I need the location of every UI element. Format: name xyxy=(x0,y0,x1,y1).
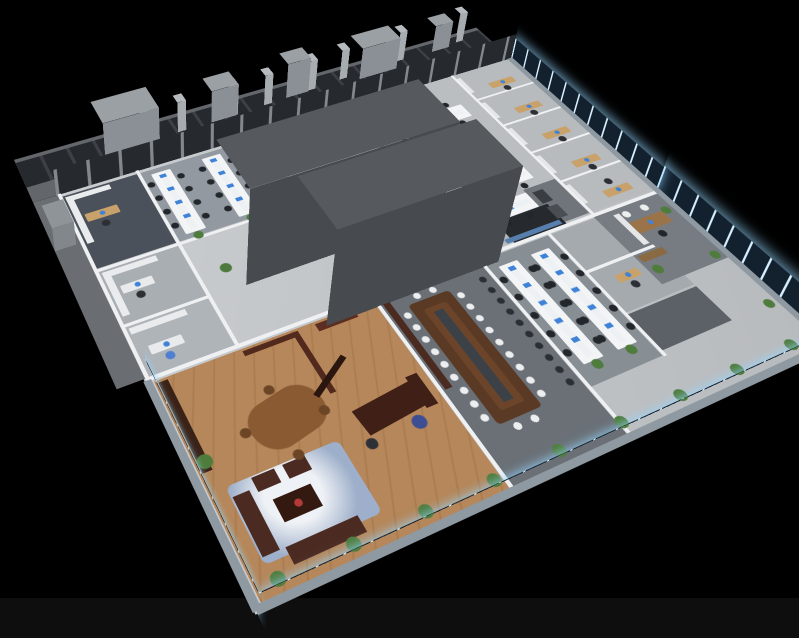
background-bottom-band xyxy=(0,598,799,638)
facade-pilaster-south-face xyxy=(177,100,186,132)
floor-plan xyxy=(14,28,799,630)
office-floorplan-3d-render xyxy=(0,0,799,638)
